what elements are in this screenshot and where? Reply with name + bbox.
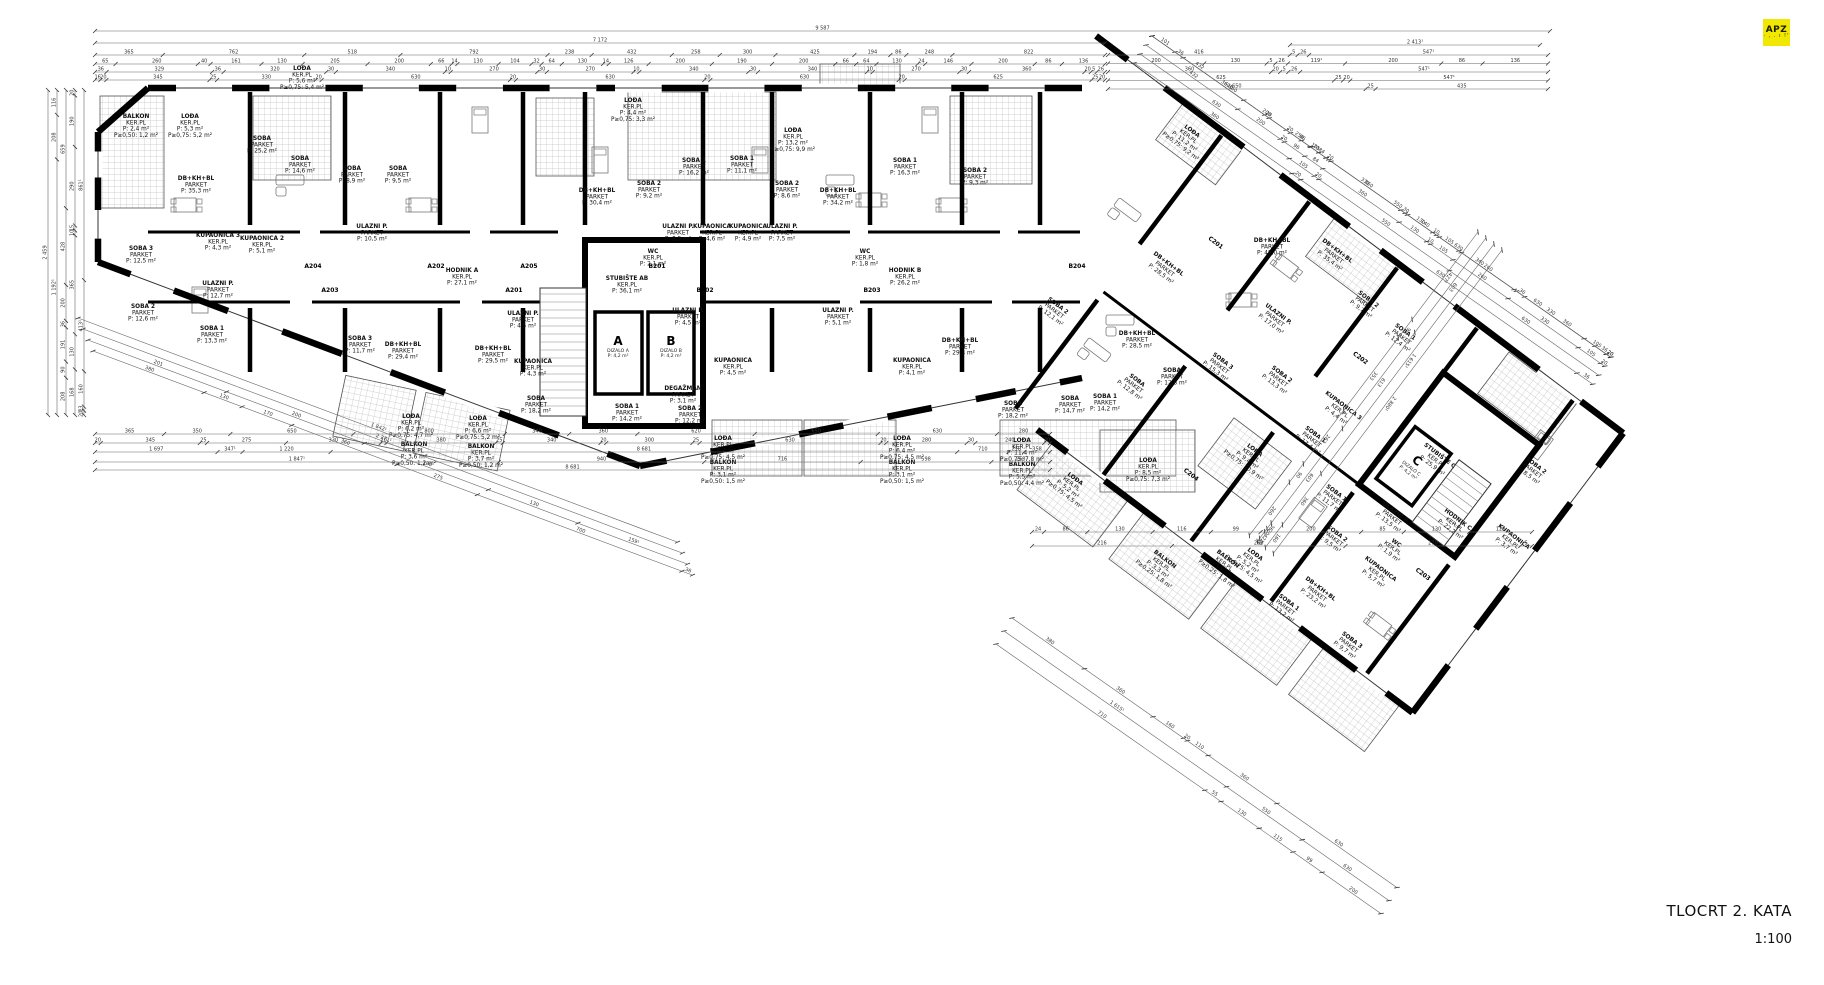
- svg-text:ULAZNI P.PARKETP: 4,5 m²: ULAZNI P.PARKETP: 4,5 m²: [507, 311, 539, 330]
- svg-text:14: 14: [603, 58, 609, 64]
- svg-text:DIZALO BP: 4,2 m²: DIZALO BP: 4,2 m²: [660, 348, 682, 359]
- svg-text:300: 300: [645, 437, 655, 443]
- svg-text:270: 270: [489, 66, 499, 72]
- svg-text:36: 36: [60, 321, 66, 327]
- svg-text:86: 86: [1062, 526, 1068, 532]
- svg-text:ULAZNI P.PARKETP: 7,5 m²: ULAZNI P.PARKETP: 7,5 m²: [766, 224, 798, 243]
- svg-text:630: 630: [1211, 99, 1222, 109]
- svg-text:428: 428: [60, 242, 66, 252]
- svg-text:110: 110: [1194, 741, 1205, 751]
- svg-text:630: 630: [800, 74, 810, 80]
- svg-text:762: 762: [229, 49, 239, 55]
- svg-text:630: 630: [605, 74, 615, 80]
- svg-text:130: 130: [218, 393, 229, 402]
- svg-text:200: 200: [60, 298, 66, 308]
- svg-text:A: A: [613, 334, 623, 348]
- svg-text:130: 130: [529, 500, 540, 509]
- svg-text:630: 630: [1532, 298, 1543, 308]
- svg-text:268: 268: [1016, 456, 1026, 462]
- plan-title: TLOCRT 2. KATA: [1666, 902, 1792, 920]
- svg-text:190: 190: [69, 116, 75, 126]
- svg-text:20: 20: [898, 74, 904, 80]
- svg-text:168: 168: [69, 387, 75, 397]
- svg-text:190: 190: [737, 58, 747, 64]
- svg-text:260: 260: [152, 58, 162, 64]
- floorplan-page: ADIZALO AP: 4,2 m²BDIZALO BP: 4,2 m²CDIZ…: [0, 0, 1824, 985]
- svg-text:126: 126: [624, 58, 634, 64]
- svg-text:330: 330: [1539, 316, 1550, 326]
- svg-text:30: 30: [328, 66, 334, 72]
- svg-text:300: 300: [743, 49, 753, 55]
- svg-text:416: 416: [1194, 49, 1204, 55]
- svg-text:105: 105: [1438, 245, 1449, 255]
- svg-text:258: 258: [691, 49, 701, 55]
- svg-text:340: 340: [689, 66, 699, 72]
- svg-text:25: 25: [1367, 83, 1373, 89]
- svg-text:365: 365: [124, 49, 134, 55]
- svg-text:159¹: 159¹: [627, 536, 640, 546]
- svg-text:20: 20: [100, 74, 106, 80]
- svg-text:A202: A202: [427, 263, 444, 270]
- svg-text:280: 280: [1019, 428, 1029, 434]
- svg-text:25: 25: [200, 437, 206, 443]
- svg-text:290: 290: [69, 181, 75, 191]
- svg-text:550: 550: [1392, 200, 1403, 210]
- svg-text:248: 248: [925, 49, 935, 55]
- svg-text:547¹: 547¹: [1443, 75, 1455, 81]
- svg-text:700: 700: [575, 526, 586, 535]
- svg-text:B: B: [666, 334, 675, 348]
- svg-text:SOBA 1PARKETP: 11,1 m²: SOBA 1PARKETP: 11,1 m²: [727, 156, 757, 175]
- svg-text:340: 340: [386, 66, 396, 72]
- svg-text:360: 360: [1022, 66, 1032, 72]
- svg-text:ULAZNI P.PARKETP: 4,5 m²: ULAZNI P.PARKETP: 4,5 m²: [672, 308, 704, 327]
- svg-text:ULAZNI P.PARKETP: 5,1 m²: ULAZNI P.PARKETP: 5,1 m²: [822, 308, 854, 327]
- svg-text:280: 280: [922, 437, 932, 443]
- svg-text:20: 20: [704, 74, 710, 80]
- svg-text:8 681: 8 681: [565, 464, 579, 470]
- svg-text:ULAZNI P.PARKETP: 10,5 m²: ULAZNI P.PARKETP: 10,5 m²: [356, 224, 388, 243]
- svg-text:64: 64: [549, 58, 555, 64]
- svg-text:360: 360: [598, 428, 608, 434]
- svg-text:DIZALO AP: 4,2 m²: DIZALO AP: 4,2 m²: [607, 348, 630, 359]
- svg-text:260: 260: [1482, 263, 1493, 273]
- svg-text:200: 200: [799, 58, 809, 64]
- svg-text:365: 365: [125, 428, 135, 434]
- svg-text:340: 340: [547, 437, 557, 443]
- svg-text:SOBA 1PARKETP: 13,3 m²: SOBA 1PARKETP: 13,3 m²: [197, 326, 227, 345]
- svg-text:SOBA 2PARKETP: 12,2 m²: SOBA 2PARKETP: 12,2 m²: [675, 406, 705, 425]
- svg-text:160: 160: [78, 384, 84, 394]
- svg-text:115: 115: [1272, 833, 1283, 843]
- svg-text:630: 630: [1453, 242, 1464, 252]
- svg-text:90: 90: [60, 366, 66, 372]
- svg-text:130: 130: [578, 58, 588, 64]
- svg-text:630: 630: [1333, 838, 1344, 848]
- svg-text:200: 200: [291, 411, 302, 420]
- svg-text:86: 86: [1045, 58, 1051, 64]
- logo-subtext: · , . ı !': [1764, 34, 1790, 39]
- svg-text:26: 26: [1098, 66, 1104, 72]
- svg-text:125: 125: [1496, 526, 1506, 532]
- svg-text:10: 10: [445, 66, 451, 72]
- svg-text:55: 55: [1210, 789, 1219, 798]
- svg-text:792: 792: [469, 49, 479, 55]
- svg-text:630: 630: [1341, 863, 1352, 873]
- svg-text:36: 36: [98, 66, 104, 72]
- svg-text:270: 270: [585, 66, 595, 72]
- svg-text:20: 20: [1343, 75, 1349, 81]
- svg-text:99: 99: [1305, 856, 1314, 865]
- svg-text:104: 104: [510, 58, 520, 64]
- svg-text:20: 20: [315, 74, 321, 80]
- svg-text:20: 20: [69, 90, 75, 96]
- svg-text:161: 161: [231, 58, 241, 64]
- svg-text:200: 200: [675, 58, 685, 64]
- svg-text:5: 5: [1269, 58, 1272, 64]
- floor-plan-svg: ADIZALO AP: 4,2 m²BDIZALO BP: 4,2 m²CDIZ…: [0, 0, 1824, 985]
- svg-text:130: 130: [1236, 808, 1247, 818]
- svg-text:380: 380: [436, 437, 446, 443]
- svg-text:160: 160: [1164, 720, 1175, 730]
- svg-text:136: 136: [1079, 58, 1089, 64]
- svg-text:A201: A201: [505, 287, 522, 294]
- svg-text:14: 14: [451, 58, 457, 64]
- svg-text:620: 620: [691, 428, 701, 434]
- svg-text:SOBA 1PARKETP: 14,2 m²: SOBA 1PARKETP: 14,2 m²: [1090, 394, 1120, 413]
- svg-text:1 615¹: 1 615¹: [1108, 700, 1125, 714]
- svg-text:30: 30: [539, 66, 545, 72]
- svg-text:360: 360: [1115, 685, 1126, 695]
- svg-text:105: 105: [1298, 160, 1309, 170]
- svg-text:200: 200: [998, 58, 1008, 64]
- svg-text:345: 345: [146, 437, 156, 443]
- svg-text:350: 350: [192, 428, 202, 434]
- svg-text:5: 5: [1525, 540, 1528, 546]
- svg-text:32: 32: [533, 58, 539, 64]
- svg-text:200: 200: [1306, 526, 1316, 532]
- svg-text:170: 170: [262, 409, 273, 418]
- svg-text:30: 30: [968, 437, 974, 443]
- svg-text:A204: A204: [304, 263, 321, 270]
- svg-text:SOBA 1PARKETP: 16,2 m²: SOBA 1PARKETP: 16,2 m²: [679, 158, 709, 177]
- svg-text:2 459: 2 459: [42, 245, 48, 259]
- svg-text:650: 650: [811, 428, 821, 434]
- svg-text:200: 200: [394, 58, 404, 64]
- svg-text:358: 358: [1032, 446, 1042, 452]
- svg-text:432: 432: [1194, 61, 1205, 71]
- svg-text:24: 24: [918, 58, 924, 64]
- svg-text:20: 20: [510, 74, 516, 80]
- svg-text:36: 36: [215, 66, 221, 72]
- svg-text:650: 650: [287, 428, 297, 434]
- svg-text:5: 5: [1092, 66, 1095, 72]
- svg-text:340: 340: [808, 66, 818, 72]
- svg-text:10: 10: [867, 66, 873, 72]
- svg-text:205: 205: [330, 58, 340, 64]
- svg-text:ULAZNI P.PARKETP: 12,7 m²: ULAZNI P.PARKETP: 12,7 m²: [202, 281, 234, 300]
- svg-text:329: 329: [155, 66, 165, 72]
- svg-text:119¹: 119¹: [1311, 58, 1323, 64]
- svg-text:20: 20: [1084, 66, 1090, 72]
- svg-text:20: 20: [1314, 171, 1323, 180]
- svg-text:8 681: 8 681: [637, 446, 651, 452]
- svg-text:550: 550: [1260, 806, 1271, 816]
- svg-text:40: 40: [201, 58, 207, 64]
- svg-text:1 697: 1 697: [149, 446, 163, 452]
- svg-text:630: 630: [1520, 316, 1531, 326]
- svg-text:2 413¹: 2 413¹: [1407, 39, 1423, 45]
- svg-text:86: 86: [1459, 58, 1465, 64]
- svg-text:SOBA 2PARKETP: 12,6 m²: SOBA 2PARKETP: 12,6 m²: [128, 304, 158, 323]
- svg-text:101: 101: [1159, 37, 1170, 47]
- title-block: TLOCRT 2. KATA 1:100: [1666, 902, 1792, 947]
- svg-text:24: 24: [1035, 526, 1041, 532]
- svg-text:1 192¹: 1 192¹: [51, 279, 57, 295]
- svg-text:25: 25: [496, 437, 502, 443]
- svg-text:360: 360: [1561, 318, 1572, 328]
- svg-text:710: 710: [978, 446, 988, 452]
- svg-text:25: 25: [210, 74, 216, 80]
- svg-text:1 220: 1 220: [279, 446, 293, 452]
- svg-text:84: 84: [1311, 156, 1320, 165]
- svg-text:20: 20: [95, 437, 101, 443]
- svg-text:SOBA 3PARKETP: 12,5 m²: SOBA 3PARKETP: 12,5 m²: [126, 246, 156, 265]
- svg-text:625: 625: [993, 74, 1003, 80]
- svg-text:270: 270: [1428, 540, 1438, 546]
- svg-text:380: 380: [144, 365, 155, 374]
- svg-text:SOBA 3PARKETP: 11,7 m²: SOBA 3PARKETP: 11,7 m²: [345, 336, 375, 355]
- svg-text:194: 194: [868, 49, 878, 55]
- svg-text:1 847¹: 1 847¹: [289, 456, 305, 462]
- svg-text:380: 380: [1044, 636, 1055, 646]
- svg-text:208: 208: [51, 132, 57, 142]
- svg-text:200: 200: [1388, 58, 1398, 64]
- svg-text:630: 630: [411, 74, 421, 80]
- svg-text:130: 130: [473, 58, 483, 64]
- svg-text:SOBA 2PARKETP: 9,2 m²: SOBA 2PARKETP: 9,2 m²: [636, 181, 662, 200]
- svg-text:5: 5: [1283, 66, 1286, 72]
- svg-text:130: 130: [277, 58, 287, 64]
- svg-text:240: 240: [1005, 437, 1015, 443]
- svg-text:130: 130: [1432, 526, 1442, 532]
- svg-text:25: 25: [1335, 75, 1341, 81]
- svg-text:260: 260: [1476, 272, 1487, 282]
- svg-text:146: 146: [944, 58, 954, 64]
- svg-text:20: 20: [1099, 74, 1105, 80]
- svg-text:432: 432: [627, 49, 637, 55]
- svg-text:130: 130: [1409, 225, 1420, 235]
- svg-text:A203: A203: [321, 287, 338, 294]
- svg-text:270: 270: [911, 66, 921, 72]
- svg-text:26: 26: [1278, 58, 1284, 64]
- svg-text:85: 85: [1379, 526, 1385, 532]
- svg-text:630: 630: [933, 428, 943, 434]
- svg-text:365: 365: [69, 280, 75, 290]
- svg-text:20: 20: [600, 437, 606, 443]
- svg-text:36: 36: [1582, 372, 1591, 381]
- svg-text:275: 275: [242, 437, 252, 443]
- svg-text:25: 25: [693, 437, 699, 443]
- svg-text:360: 360: [1363, 179, 1374, 189]
- svg-text:130: 130: [69, 347, 75, 357]
- svg-text:603: 603: [1447, 281, 1458, 292]
- svg-text:9 587: 9 587: [815, 25, 829, 31]
- svg-text:65: 65: [102, 58, 108, 64]
- svg-text:200: 200: [1347, 886, 1358, 896]
- svg-text:347¹: 347¹: [224, 446, 236, 452]
- svg-text:B204: B204: [1068, 263, 1085, 270]
- svg-text:130: 130: [892, 58, 902, 64]
- svg-text:330: 330: [329, 437, 339, 443]
- svg-text:340: 340: [532, 428, 542, 434]
- svg-text:360: 360: [1357, 188, 1368, 198]
- svg-text:20: 20: [1044, 437, 1050, 443]
- svg-text:940: 940: [597, 456, 607, 462]
- svg-text:10: 10: [633, 66, 639, 72]
- svg-text:25: 25: [1092, 74, 1098, 80]
- svg-text:345: 345: [153, 74, 163, 80]
- svg-text:20: 20: [1293, 170, 1302, 179]
- svg-text:238: 238: [565, 49, 575, 55]
- svg-text:800: 800: [424, 428, 434, 434]
- svg-text:B201: B201: [648, 263, 665, 270]
- svg-text:630: 630: [785, 437, 795, 443]
- svg-text:218: 218: [1012, 446, 1022, 452]
- svg-text:36: 36: [684, 567, 692, 575]
- svg-text:64: 64: [863, 58, 869, 64]
- svg-text:191: 191: [60, 340, 66, 350]
- svg-text:A205: A205: [520, 263, 537, 270]
- svg-text:547¹: 547¹: [1423, 49, 1435, 55]
- svg-text:99: 99: [1233, 526, 1239, 532]
- svg-text:201: 201: [153, 359, 164, 368]
- svg-text:20: 20: [880, 437, 886, 443]
- svg-text:B202: B202: [696, 287, 713, 294]
- svg-text:SOBA 2PARKETP: 8,6 m²: SOBA 2PARKETP: 8,6 m²: [774, 181, 800, 200]
- svg-text:30: 30: [961, 66, 967, 72]
- svg-text:SOBA 2PARKETP: 9,3 m²: SOBA 2PARKETP: 9,3 m²: [962, 168, 988, 187]
- svg-text:200: 200: [1255, 117, 1266, 127]
- svg-text:136: 136: [1511, 58, 1521, 64]
- svg-text:116: 116: [51, 98, 57, 108]
- svg-text:659: 659: [60, 144, 66, 154]
- plan-scale: 1:100: [1666, 932, 1792, 947]
- svg-text:105: 105: [1585, 348, 1596, 358]
- svg-text:5: 5: [1292, 49, 1295, 55]
- svg-text:SOBA 1PARKETP: 16,3 m²: SOBA 1PARKETP: 16,3 m²: [890, 158, 920, 177]
- svg-text:518: 518: [348, 49, 358, 55]
- svg-text:268: 268: [1254, 540, 1264, 546]
- svg-text:432: 432: [1188, 70, 1199, 80]
- svg-text:B203: B203: [863, 287, 880, 294]
- svg-text:66: 66: [843, 58, 849, 64]
- svg-text:550: 550: [1380, 218, 1391, 228]
- svg-text:330: 330: [1545, 307, 1556, 317]
- svg-text:20: 20: [1272, 66, 1278, 72]
- svg-text:130: 130: [1115, 526, 1125, 532]
- svg-text:SOBA 1PARKETP: 14,2 m²: SOBA 1PARKETP: 14,2 m²: [612, 404, 642, 423]
- svg-text:15: 15: [69, 225, 75, 231]
- svg-text:ULAZNI P.PARKETP: 8,5 m²: ULAZNI P.PARKETP: 8,5 m²: [662, 224, 694, 243]
- svg-text:598: 598: [921, 456, 931, 462]
- svg-text:26: 26: [1291, 66, 1297, 72]
- logo-apz: APZ · , . ı !': [1763, 19, 1790, 46]
- svg-text:547¹: 547¹: [1418, 66, 1430, 72]
- svg-text:360: 360: [1238, 772, 1249, 782]
- svg-text:116: 116: [1177, 526, 1187, 532]
- svg-text:208: 208: [60, 392, 66, 402]
- svg-text:275: 275: [433, 473, 444, 482]
- svg-text:861¹: 861¹: [78, 179, 84, 191]
- svg-text:96: 96: [1292, 143, 1301, 152]
- svg-text:7 172: 7 172: [593, 37, 607, 43]
- svg-text:435: 435: [1457, 83, 1467, 89]
- svg-text:30: 30: [750, 66, 756, 72]
- svg-text:320: 320: [270, 66, 280, 72]
- svg-text:216: 216: [1097, 540, 1107, 546]
- svg-text:716: 716: [778, 456, 788, 462]
- svg-text:822: 822: [1024, 49, 1034, 55]
- svg-text:130: 130: [1231, 58, 1241, 64]
- svg-text:425: 425: [810, 49, 820, 55]
- svg-text:330: 330: [262, 74, 272, 80]
- svg-text:86: 86: [895, 49, 901, 55]
- svg-text:710: 710: [1096, 710, 1107, 720]
- svg-text:66: 66: [438, 58, 444, 64]
- svg-text:26: 26: [1300, 49, 1306, 55]
